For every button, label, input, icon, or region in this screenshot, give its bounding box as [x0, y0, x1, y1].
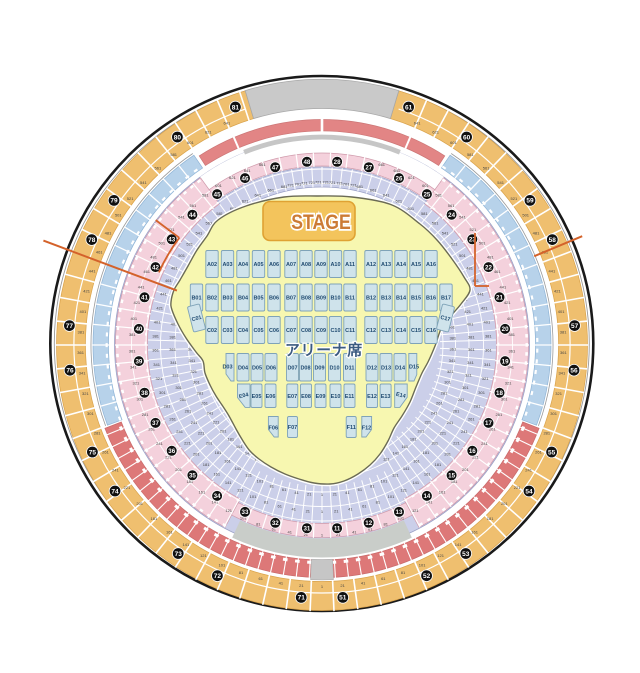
- svg-text:721: 721: [329, 180, 336, 185]
- svg-text:461: 461: [472, 278, 479, 283]
- svg-text:501: 501: [178, 253, 185, 258]
- svg-text:E06: E06: [266, 394, 276, 400]
- svg-text:341: 341: [153, 362, 160, 367]
- svg-text:161: 161: [471, 530, 478, 535]
- svg-text:281: 281: [458, 397, 465, 402]
- svg-text:321: 321: [505, 381, 512, 386]
- svg-text:361: 361: [129, 349, 136, 354]
- svg-text:61: 61: [358, 487, 363, 492]
- svg-text:261: 261: [453, 409, 460, 414]
- svg-text:441: 441: [138, 284, 145, 289]
- svg-text:D07: D07: [287, 365, 297, 371]
- svg-text:301: 301: [87, 411, 94, 416]
- svg-text:181: 181: [227, 437, 234, 442]
- svg-text:681: 681: [356, 184, 363, 189]
- svg-text:201: 201: [418, 428, 425, 433]
- svg-text:21: 21: [306, 508, 311, 513]
- svg-text:A08: A08: [301, 262, 311, 268]
- svg-text:F06: F06: [269, 425, 278, 431]
- svg-text:241: 241: [112, 468, 119, 473]
- svg-text:11: 11: [334, 525, 341, 532]
- svg-text:C12: C12: [366, 328, 376, 334]
- svg-text:A04: A04: [238, 262, 249, 268]
- svg-text:621: 621: [408, 175, 415, 180]
- svg-text:161: 161: [401, 444, 408, 449]
- svg-text:261: 261: [102, 450, 109, 455]
- svg-text:121: 121: [412, 508, 419, 513]
- svg-text:301: 301: [193, 380, 200, 385]
- svg-text:581: 581: [435, 193, 442, 198]
- svg-text:581: 581: [467, 152, 474, 157]
- svg-text:241: 241: [191, 420, 198, 425]
- svg-text:D04: D04: [238, 365, 249, 371]
- svg-text:A10: A10: [330, 262, 340, 268]
- svg-text:361: 361: [485, 348, 492, 353]
- svg-text:45: 45: [214, 191, 221, 198]
- svg-text:26: 26: [396, 175, 403, 182]
- svg-text:321: 321: [156, 376, 163, 381]
- svg-text:321: 321: [555, 391, 562, 396]
- svg-text:401: 401: [467, 322, 474, 327]
- svg-text:59: 59: [526, 198, 534, 205]
- svg-text:221: 221: [453, 441, 460, 446]
- svg-text:53: 53: [462, 551, 470, 558]
- svg-text:75: 75: [89, 449, 97, 456]
- svg-text:341: 341: [189, 358, 196, 363]
- svg-text:541: 541: [178, 215, 185, 220]
- svg-text:341: 341: [79, 371, 86, 376]
- svg-text:361: 361: [77, 350, 84, 355]
- svg-text:181: 181: [410, 437, 417, 442]
- svg-text:601: 601: [422, 183, 429, 188]
- svg-text:481: 481: [533, 231, 540, 236]
- svg-text:221: 221: [198, 431, 205, 436]
- svg-text:E05: E05: [252, 394, 262, 400]
- svg-text:481: 481: [487, 255, 494, 260]
- svg-text:アリーナ席: アリーナ席: [285, 341, 363, 359]
- svg-text:561: 561: [432, 220, 439, 225]
- svg-text:181: 181: [151, 516, 158, 521]
- svg-text:61: 61: [258, 576, 263, 581]
- svg-text:201: 201: [175, 467, 182, 472]
- svg-text:C10: C10: [330, 328, 340, 334]
- svg-text:141: 141: [403, 466, 410, 471]
- svg-text:481: 481: [105, 231, 112, 236]
- svg-text:281: 281: [543, 431, 550, 436]
- svg-text:161: 161: [166, 530, 173, 535]
- svg-text:181: 181: [203, 462, 210, 467]
- svg-text:74: 74: [111, 488, 119, 495]
- svg-text:641: 641: [254, 193, 261, 198]
- svg-text:301: 301: [159, 390, 166, 395]
- svg-text:461: 461: [165, 278, 172, 283]
- svg-text:A15: A15: [411, 262, 421, 268]
- svg-text:F07: F07: [288, 425, 297, 431]
- svg-text:401: 401: [484, 319, 491, 324]
- svg-text:F12: F12: [362, 425, 371, 431]
- svg-text:A05: A05: [253, 262, 263, 268]
- svg-text:221: 221: [124, 485, 131, 490]
- svg-text:B02: B02: [207, 296, 217, 302]
- svg-text:241: 241: [156, 441, 163, 446]
- svg-text:141: 141: [455, 542, 462, 547]
- svg-text:161: 161: [199, 490, 206, 495]
- svg-text:321: 321: [190, 369, 197, 374]
- svg-text:121: 121: [383, 457, 390, 462]
- svg-text:341: 341: [484, 362, 491, 367]
- svg-text:421: 421: [133, 300, 140, 305]
- svg-text:661: 661: [378, 162, 385, 167]
- svg-text:61: 61: [282, 487, 287, 492]
- svg-text:441: 441: [549, 269, 556, 274]
- svg-text:121: 121: [245, 473, 252, 478]
- svg-text:42: 42: [152, 264, 159, 271]
- svg-text:B13: B13: [381, 296, 391, 302]
- svg-text:261: 261: [535, 450, 542, 455]
- svg-text:121: 121: [225, 508, 232, 513]
- svg-text:13: 13: [396, 509, 403, 516]
- svg-text:E13: E13: [381, 394, 391, 400]
- svg-text:80: 80: [174, 134, 182, 141]
- svg-text:12: 12: [365, 520, 372, 527]
- svg-text:101: 101: [257, 479, 264, 484]
- svg-text:201: 201: [206, 441, 213, 446]
- svg-text:361: 361: [560, 350, 567, 355]
- svg-text:501: 501: [459, 253, 466, 258]
- svg-text:36: 36: [168, 448, 175, 455]
- svg-text:201: 201: [431, 441, 438, 446]
- svg-text:601: 601: [215, 183, 222, 188]
- svg-text:E10: E10: [331, 394, 341, 400]
- svg-text:141: 141: [234, 466, 241, 471]
- svg-text:441: 441: [160, 292, 167, 297]
- svg-text:601: 601: [450, 140, 457, 145]
- svg-text:44: 44: [189, 212, 196, 219]
- svg-text:81: 81: [270, 483, 275, 488]
- svg-text:201: 201: [220, 428, 227, 433]
- svg-text:641: 641: [393, 168, 400, 173]
- svg-text:B04: B04: [238, 296, 249, 302]
- svg-text:C15: C15: [411, 328, 421, 334]
- svg-text:361: 361: [152, 348, 159, 353]
- svg-text:321: 321: [133, 381, 140, 386]
- svg-text:35: 35: [189, 473, 196, 480]
- svg-text:381: 381: [508, 332, 515, 337]
- svg-text:15: 15: [448, 473, 455, 480]
- svg-text:101: 101: [250, 494, 257, 499]
- svg-text:161: 161: [439, 490, 446, 495]
- svg-text:121: 121: [400, 488, 407, 493]
- svg-text:381: 381: [449, 335, 456, 340]
- svg-text:621: 621: [229, 175, 236, 180]
- svg-text:C05: C05: [253, 328, 263, 334]
- svg-text:301: 301: [175, 385, 182, 390]
- svg-text:281: 281: [496, 412, 503, 417]
- svg-text:C06: C06: [269, 328, 279, 334]
- svg-text:61: 61: [362, 504, 367, 509]
- svg-text:281: 281: [474, 403, 481, 408]
- svg-text:72: 72: [214, 573, 222, 580]
- svg-text:301: 301: [444, 380, 451, 385]
- svg-text:401: 401: [154, 319, 161, 324]
- svg-text:61: 61: [381, 576, 386, 581]
- svg-text:301: 301: [550, 411, 557, 416]
- svg-text:16: 16: [469, 448, 476, 455]
- svg-text:61: 61: [405, 104, 413, 111]
- svg-text:661: 661: [259, 162, 266, 167]
- svg-text:81: 81: [232, 104, 240, 111]
- svg-text:421: 421: [156, 305, 163, 310]
- svg-text:A11: A11: [345, 262, 355, 268]
- svg-text:261: 261: [201, 401, 208, 406]
- svg-text:81: 81: [239, 570, 244, 575]
- svg-text:B14: B14: [396, 296, 407, 302]
- svg-text:D06: D06: [266, 365, 276, 371]
- svg-text:40: 40: [135, 326, 142, 333]
- svg-text:56: 56: [570, 368, 578, 375]
- svg-text:301: 301: [462, 385, 469, 390]
- svg-text:181: 181: [487, 516, 494, 521]
- svg-text:A09: A09: [316, 262, 326, 268]
- svg-text:281: 281: [197, 390, 204, 395]
- svg-text:A07: A07: [286, 262, 296, 268]
- svg-text:81: 81: [256, 522, 261, 527]
- svg-text:41: 41: [348, 507, 353, 512]
- svg-text:221: 221: [424, 420, 431, 425]
- svg-text:501: 501: [115, 213, 122, 218]
- svg-text:581: 581: [421, 211, 428, 216]
- svg-text:141: 141: [392, 451, 399, 456]
- svg-text:D03: D03: [222, 365, 232, 371]
- svg-text:46: 46: [242, 175, 249, 182]
- svg-text:B16: B16: [426, 296, 436, 302]
- svg-text:421: 421: [83, 289, 90, 294]
- svg-text:161: 161: [413, 458, 420, 463]
- svg-text:381: 381: [468, 334, 475, 339]
- svg-text:361: 361: [169, 347, 176, 352]
- svg-text:241: 241: [447, 420, 454, 425]
- svg-text:261: 261: [468, 416, 475, 421]
- svg-text:621: 621: [242, 199, 249, 204]
- svg-text:641: 641: [383, 193, 390, 198]
- svg-text:561: 561: [190, 203, 197, 208]
- svg-text:521: 521: [511, 196, 518, 201]
- svg-text:721: 721: [350, 183, 357, 188]
- svg-text:321: 321: [82, 391, 89, 396]
- svg-text:21: 21: [496, 295, 503, 302]
- svg-text:78: 78: [88, 237, 96, 244]
- svg-text:E12: E12: [367, 394, 377, 400]
- svg-text:21: 21: [334, 508, 339, 513]
- svg-text:F11: F11: [347, 425, 356, 431]
- svg-text:101: 101: [419, 562, 426, 567]
- svg-text:18: 18: [496, 390, 503, 397]
- svg-text:461: 461: [494, 269, 501, 274]
- svg-text:381: 381: [169, 334, 176, 339]
- svg-text:521: 521: [470, 227, 477, 232]
- svg-text:641: 641: [224, 121, 231, 126]
- svg-text:21: 21: [340, 583, 345, 588]
- svg-text:281: 281: [441, 390, 448, 395]
- svg-text:17: 17: [485, 420, 492, 427]
- svg-text:461: 461: [96, 249, 103, 254]
- svg-text:541: 541: [497, 180, 504, 185]
- svg-text:201: 201: [444, 452, 451, 457]
- svg-text:401: 401: [80, 309, 87, 314]
- svg-text:321: 321: [447, 369, 454, 374]
- svg-text:C16: C16: [426, 328, 436, 334]
- svg-text:STAGE: STAGE: [291, 211, 350, 235]
- svg-text:221: 221: [514, 485, 521, 490]
- svg-text:A02: A02: [207, 262, 217, 268]
- svg-text:34: 34: [214, 493, 221, 500]
- svg-text:81: 81: [376, 499, 381, 504]
- svg-text:121: 121: [392, 473, 399, 478]
- svg-text:221: 221: [184, 441, 191, 446]
- svg-text:B09: B09: [316, 296, 326, 302]
- svg-text:81: 81: [264, 499, 269, 504]
- svg-text:B07: B07: [286, 296, 296, 302]
- svg-text:621: 621: [205, 130, 212, 135]
- svg-text:421: 421: [554, 289, 561, 294]
- svg-text:C13: C13: [381, 328, 391, 334]
- svg-text:41: 41: [345, 490, 350, 495]
- svg-text:22: 22: [485, 264, 492, 271]
- svg-text:D14: D14: [395, 365, 406, 371]
- svg-text:401: 401: [507, 316, 514, 321]
- svg-text:161: 161: [224, 458, 231, 463]
- svg-text:361: 361: [468, 347, 475, 352]
- svg-text:281: 281: [94, 431, 101, 436]
- svg-text:641: 641: [244, 168, 251, 173]
- svg-text:161: 161: [213, 472, 220, 477]
- svg-text:241: 241: [431, 410, 438, 415]
- svg-text:141: 141: [412, 480, 419, 485]
- svg-text:221: 221: [213, 420, 220, 425]
- svg-text:421: 421: [481, 305, 488, 310]
- svg-text:401: 401: [130, 316, 137, 321]
- svg-text:441: 441: [89, 269, 96, 274]
- svg-text:421: 421: [504, 300, 511, 305]
- svg-text:181: 181: [423, 450, 430, 455]
- svg-text:20: 20: [502, 326, 509, 333]
- svg-text:541: 541: [442, 230, 449, 235]
- svg-text:48: 48: [303, 159, 310, 166]
- svg-text:101: 101: [381, 479, 388, 484]
- svg-text:501: 501: [158, 240, 165, 245]
- svg-text:241: 241: [207, 410, 214, 415]
- svg-text:361: 361: [450, 347, 457, 352]
- svg-text:241: 241: [525, 468, 532, 473]
- svg-text:41: 41: [361, 581, 366, 586]
- svg-text:21: 21: [299, 583, 304, 588]
- svg-text:25: 25: [423, 191, 430, 198]
- svg-text:A06: A06: [269, 262, 279, 268]
- svg-text:21: 21: [333, 492, 338, 497]
- svg-text:301: 301: [478, 390, 485, 395]
- svg-text:721: 721: [336, 181, 343, 186]
- svg-text:281: 281: [142, 412, 149, 417]
- svg-text:541: 541: [196, 230, 203, 235]
- svg-text:28: 28: [334, 159, 341, 166]
- svg-text:33: 33: [242, 509, 249, 516]
- svg-text:181: 181: [215, 450, 222, 455]
- svg-text:601: 601: [187, 140, 194, 145]
- svg-text:A16: A16: [426, 262, 436, 268]
- svg-text:561: 561: [155, 165, 162, 170]
- svg-text:39: 39: [135, 358, 142, 365]
- svg-text:381: 381: [78, 329, 85, 334]
- svg-text:73: 73: [175, 551, 183, 558]
- svg-text:B12: B12: [366, 296, 376, 302]
- svg-text:24: 24: [448, 212, 455, 219]
- svg-text:441: 441: [500, 284, 507, 289]
- svg-text:501: 501: [479, 240, 486, 245]
- svg-text:181: 181: [435, 462, 442, 467]
- svg-text:121: 121: [437, 553, 444, 558]
- svg-text:77: 77: [66, 323, 74, 330]
- svg-text:C11: C11: [345, 328, 355, 334]
- svg-text:14: 14: [423, 493, 430, 500]
- svg-text:521: 521: [186, 241, 193, 246]
- svg-text:A12: A12: [366, 262, 376, 268]
- svg-text:641: 641: [414, 121, 421, 126]
- svg-text:52: 52: [423, 573, 431, 580]
- svg-text:441: 441: [477, 292, 484, 297]
- svg-text:81: 81: [370, 483, 375, 488]
- svg-text:721: 721: [287, 183, 294, 188]
- svg-text:381: 381: [560, 329, 567, 334]
- svg-text:E07: E07: [287, 394, 297, 400]
- svg-text:A14: A14: [396, 262, 407, 268]
- svg-text:A03: A03: [222, 262, 232, 268]
- svg-text:561: 561: [483, 165, 490, 170]
- svg-text:161: 161: [236, 444, 243, 449]
- svg-text:581: 581: [170, 152, 177, 157]
- svg-text:161: 161: [424, 472, 431, 477]
- svg-text:41: 41: [352, 530, 357, 535]
- svg-text:101: 101: [219, 562, 226, 567]
- svg-text:481: 481: [171, 265, 178, 270]
- svg-text:101: 101: [388, 494, 395, 499]
- svg-text:E08: E08: [301, 394, 311, 400]
- svg-text:B10: B10: [330, 296, 340, 302]
- svg-text:21: 21: [307, 492, 312, 497]
- svg-text:621: 621: [432, 130, 439, 135]
- svg-text:41: 41: [287, 530, 292, 535]
- svg-text:B03: B03: [222, 296, 232, 302]
- svg-text:57: 57: [571, 323, 579, 330]
- svg-text:41: 41: [294, 490, 299, 495]
- svg-text:D12: D12: [367, 365, 377, 371]
- svg-text:481: 481: [150, 255, 157, 260]
- svg-text:19: 19: [502, 358, 509, 365]
- svg-text:76: 76: [66, 368, 74, 375]
- svg-text:261: 261: [436, 401, 443, 406]
- svg-text:341: 341: [467, 360, 474, 365]
- svg-text:141: 141: [225, 480, 232, 485]
- svg-text:B08: B08: [301, 296, 311, 302]
- svg-text:221: 221: [439, 431, 446, 436]
- svg-text:541: 541: [140, 180, 147, 185]
- svg-text:B11: B11: [345, 296, 355, 302]
- svg-text:661: 661: [370, 188, 377, 193]
- svg-text:321: 321: [482, 376, 489, 381]
- svg-text:321: 321: [172, 373, 179, 378]
- svg-text:D15: D15: [409, 365, 419, 371]
- svg-text:27: 27: [365, 164, 372, 171]
- svg-text:521: 521: [451, 241, 458, 246]
